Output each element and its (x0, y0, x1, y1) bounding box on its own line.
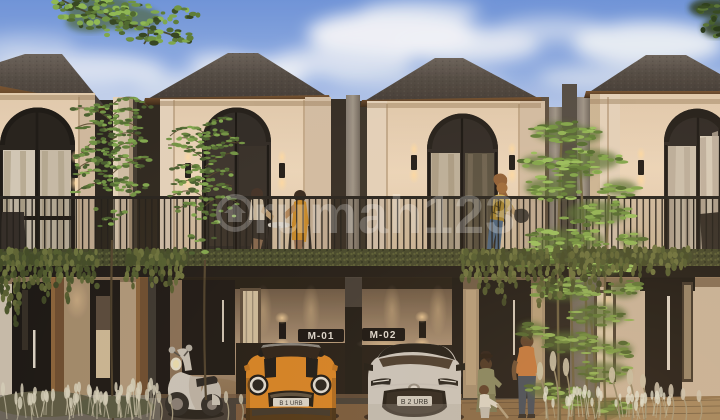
svg-text:rumah123: rumah123 (253, 185, 516, 245)
